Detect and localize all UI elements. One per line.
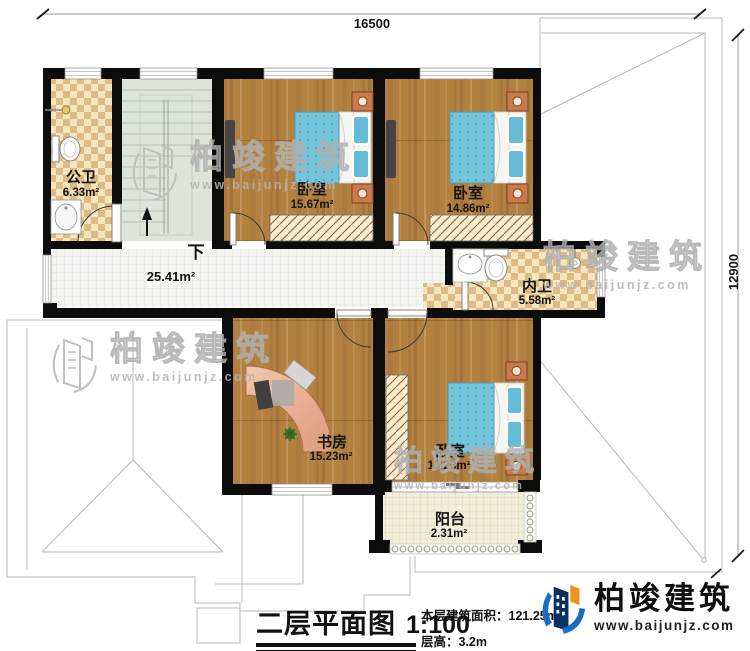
window-study-bottom <box>272 484 332 495</box>
hallway-floor <box>51 249 445 307</box>
wardrobe <box>386 375 408 480</box>
towel-ring <box>62 106 70 114</box>
area-hallway: 25.41m² <box>147 269 196 284</box>
mouse-pad <box>272 380 294 406</box>
floorplan-page: 16500 12900 <box>0 0 750 651</box>
brand-logo-icon <box>538 578 586 638</box>
drawing-title: 二层平面图 <box>256 602 396 641</box>
area-study: 15.23m² <box>310 451 353 463</box>
floorplan-drawing: 16500 12900 <box>0 0 750 651</box>
staircase-floor <box>122 79 212 241</box>
label-bedroom3: 卧室 <box>435 442 465 460</box>
window-top-3 <box>264 68 333 79</box>
brand-name-text: 柏竣建筑 <box>594 583 735 614</box>
plant <box>283 427 297 441</box>
label-study: 书房 <box>317 433 347 451</box>
title-underline <box>256 643 416 647</box>
wardrobe <box>270 215 373 241</box>
balcony-sliding-door <box>392 482 518 492</box>
sink <box>51 200 81 234</box>
label-bedroom1: 卧室 <box>297 180 327 198</box>
window-top-2 <box>140 68 197 79</box>
area-bedroom3: 15.23m² <box>428 460 471 472</box>
label-balcony: 阳台 <box>435 510 465 528</box>
wardrobe <box>430 215 533 241</box>
bed <box>450 112 526 183</box>
window-top-4 <box>420 68 493 79</box>
brand-url-text: www.baijunjz.com <box>594 618 735 633</box>
dimension-height-label: 12900 <box>726 254 741 290</box>
tv <box>386 120 396 178</box>
toilet <box>52 136 80 162</box>
area-bathroom-ensuite: 5.58m² <box>519 295 556 307</box>
area-bedroom2: 14.86m² <box>447 203 490 215</box>
area-bathroom-public: 6.33m² <box>63 187 100 199</box>
dimension-width-label: 16500 <box>354 16 390 31</box>
bed <box>295 112 371 183</box>
tv <box>225 120 235 178</box>
window-hallway-left <box>43 255 51 303</box>
toilet <box>484 249 508 281</box>
label-stairs-down: 下 <box>188 243 205 262</box>
label-bathroom-public: 公卫 <box>66 169 96 186</box>
brand-logo: 柏竣建筑 www.baijunjz.com <box>538 578 735 638</box>
area-balcony: 2.31m² <box>431 528 468 540</box>
window-top-1 <box>65 68 101 79</box>
bathroom-ensuite-alcove <box>423 283 453 308</box>
window-ensuite-right <box>597 257 605 297</box>
area-bedroom1: 15.67m² <box>291 199 334 211</box>
label-bathroom-ensuite: 内卫 <box>522 277 552 295</box>
label-bedroom2: 卧室 <box>453 184 483 202</box>
sink <box>453 249 487 282</box>
